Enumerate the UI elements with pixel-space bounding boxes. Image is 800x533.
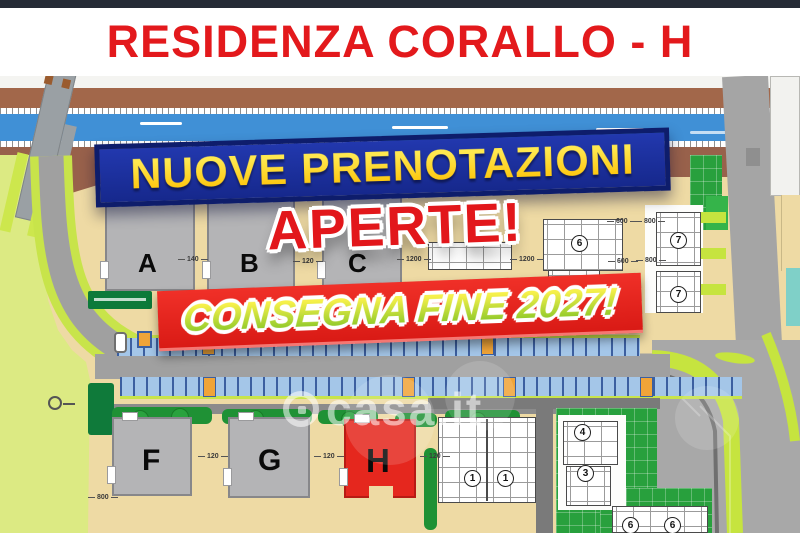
hedge-vertical <box>424 448 437 530</box>
planter <box>88 383 114 435</box>
building-H-notch <box>369 486 393 499</box>
plot-number: 6 <box>571 235 588 252</box>
parking-cell-orange <box>203 377 216 397</box>
green-band <box>700 212 726 223</box>
plot-number: 1 <box>464 470 481 487</box>
dimension-label: 120 <box>312 453 346 460</box>
floorplan-plot-4 <box>563 421 618 465</box>
plot-number: 1 <box>497 470 514 487</box>
street-sign <box>88 291 152 309</box>
kiosk <box>137 331 152 348</box>
building-label-A: A <box>138 248 157 279</box>
driveway <box>536 398 553 533</box>
beach-access-road <box>745 76 759 344</box>
parking-cell-orange <box>481 336 494 355</box>
neighbor-building <box>770 76 800 196</box>
site-plan: A B C F G H 6 7 7 1 1 4 3 6 6 140 120 <box>0 76 800 533</box>
watermark-blob <box>675 386 739 450</box>
top-border <box>0 0 800 8</box>
pool-edge <box>786 268 800 326</box>
plot-number: 7 <box>670 232 687 249</box>
dimension-label: 120 <box>196 453 230 460</box>
plot-number: 3 <box>577 465 594 482</box>
promo-text-delivery: CONSEGNA FINE 2027! <box>182 280 619 341</box>
dimension-label: 800 <box>633 218 667 225</box>
promo-text-new-bookings: NUOVE PRENOTAZIONI <box>130 136 636 200</box>
green-band <box>700 284 726 295</box>
promo-text-open: APERTE! <box>234 188 556 263</box>
dimension-label: 140 <box>176 256 210 263</box>
building-label-F: F <box>142 444 160 478</box>
green-band <box>700 248 726 259</box>
plot-number: 6 <box>664 517 681 533</box>
dimension-label: 120 <box>418 453 452 460</box>
dimension-label: 800 <box>86 494 120 501</box>
watermark-text: casa.it <box>326 382 483 436</box>
road-marking <box>746 148 760 166</box>
neighbor-lot <box>781 195 800 271</box>
listing-image: A B C F G H 6 7 7 1 1 4 3 6 6 140 120 <box>0 0 800 533</box>
north-arrow-icon <box>48 396 62 410</box>
page-title: RESIDENZA CORALLO - H <box>107 16 694 68</box>
casa-it-logo-icon <box>283 391 319 427</box>
floorplan-divider <box>486 419 488 501</box>
building-label-G: G <box>258 444 281 478</box>
plot-number: 4 <box>574 424 591 441</box>
car <box>114 332 127 353</box>
dimension-label: 1200 <box>508 256 546 263</box>
dimension-label: 800 <box>634 257 668 264</box>
plot-number: 7 <box>670 286 687 303</box>
title-band: RESIDENZA CORALLO - H <box>0 8 800 76</box>
parking-cell-orange <box>640 377 653 397</box>
plot-number: 6 <box>622 517 639 533</box>
